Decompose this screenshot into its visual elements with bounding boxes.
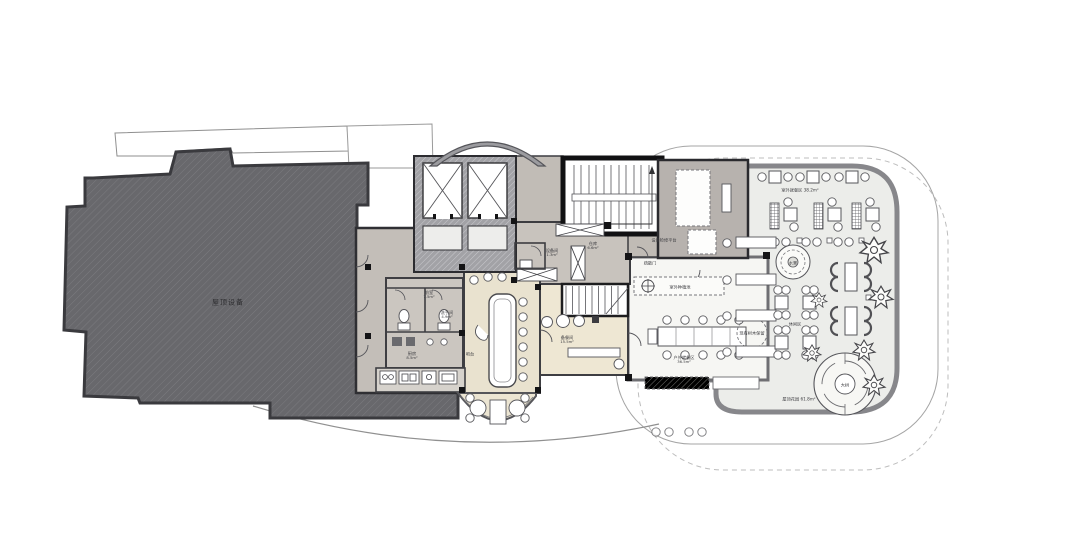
water-feature (776, 245, 810, 279)
main-staircase (563, 158, 662, 234)
restrooms (386, 278, 463, 368)
planter-strips (645, 377, 759, 389)
elevator-shafts (414, 156, 516, 272)
floor-plan-svg (0, 0, 1080, 535)
planter-box (634, 277, 724, 295)
service-room (658, 160, 748, 258)
terrace-top-tables (758, 171, 869, 183)
kitchen (376, 368, 465, 392)
floor-plan-canvas: 屋顶设备 前室 7.5m² 洗手间 4.9m² 厨房 8.5m² 吧台 备餐间 … (0, 0, 1080, 535)
bay-window-seating (458, 393, 536, 424)
